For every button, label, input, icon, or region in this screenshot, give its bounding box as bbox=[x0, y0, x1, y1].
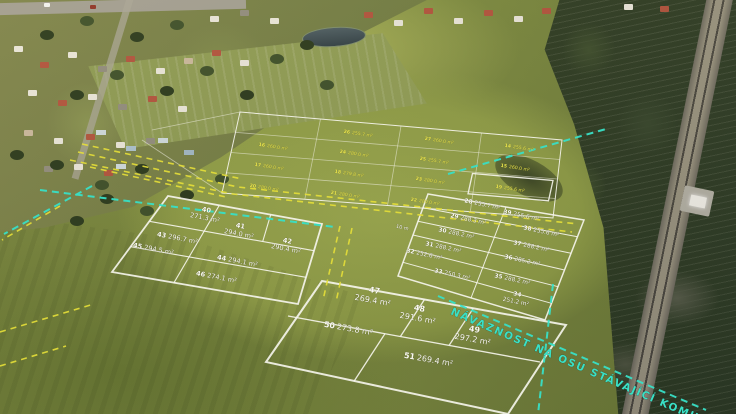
plot-label: 40271.3 m² bbox=[189, 203, 222, 225]
plot-label: 50273.8 m² bbox=[323, 320, 373, 337]
plot-label: 21280.0 m² bbox=[330, 190, 360, 201]
plot-label: 29288.3 m² bbox=[450, 212, 487, 226]
planned-road-yellow-line bbox=[82, 144, 242, 179]
plot-label: 36285.2 m² bbox=[504, 253, 541, 267]
aerial-photo: 14255.6 m² 15260.0 m² 16260.0 m² 17260.0… bbox=[0, 0, 736, 414]
plot-label: 33250.3 m² bbox=[434, 267, 471, 281]
plot-label: 17260.0 m² bbox=[254, 162, 284, 173]
plot-label: 39255.6 m² bbox=[503, 208, 540, 222]
plot-label: 16260.0 m² bbox=[258, 142, 288, 153]
plot-label: 26255.7 m² bbox=[343, 129, 373, 140]
planned-road-yellow-line bbox=[336, 228, 352, 302]
road-axis-annotation: NÁVAZNOST NA OSU STÁVAJÍCÍ KOMUNIKACE bbox=[449, 305, 736, 414]
plot-label: 41294.0 m² bbox=[223, 219, 256, 241]
plot-label: 28255.7 m² bbox=[464, 197, 501, 211]
plot-label: 48291.6 m² bbox=[399, 301, 438, 326]
plot-label: 23280.0 m² bbox=[415, 176, 445, 187]
road-axis-teal-line bbox=[438, 296, 706, 410]
plot-label: 24280.0 m² bbox=[339, 149, 369, 160]
plot-label: 20280.0 m² bbox=[249, 183, 279, 194]
planned-road-yellow-line bbox=[323, 226, 340, 300]
plot-label: 44294.1 m² bbox=[216, 253, 258, 269]
plot-label: 30288.2 m² bbox=[438, 226, 475, 240]
plot-label: 42290.4 m² bbox=[270, 234, 303, 256]
plot-label: 43296.7 m² bbox=[156, 230, 198, 246]
plot-label: 19255.6 m² bbox=[495, 184, 525, 195]
plot-label: 34251.2 m² bbox=[502, 289, 531, 308]
plot-label: 15260.0 m² bbox=[500, 163, 530, 174]
plot-label: 18279.8 m² bbox=[334, 169, 364, 180]
plot-label: 47269.4 m² bbox=[354, 283, 393, 308]
plot-label: 35288.2 m² bbox=[494, 272, 531, 286]
plot-label: 27260.0 m² bbox=[424, 136, 454, 147]
plot-label: 25255.7 m² bbox=[419, 156, 449, 167]
plot-label: 37288.2 m² bbox=[513, 239, 550, 253]
plot-label: 38255.6 m² bbox=[523, 224, 560, 238]
plot-label: 45294.5 m² bbox=[132, 241, 174, 257]
survey-line bbox=[152, 112, 240, 130]
planned-road-yellow-line bbox=[0, 304, 94, 332]
boundary-teal-line bbox=[40, 190, 335, 227]
planned-road-yellow-line bbox=[2, 206, 60, 240]
plot-label: 46274.1 m² bbox=[195, 269, 237, 285]
planned-road-yellow-line bbox=[0, 346, 66, 366]
plot-overlay: 14255.6 m² 15260.0 m² 16260.0 m² 17260.0… bbox=[0, 0, 736, 414]
road-width-label: 10 m bbox=[395, 224, 409, 233]
plot-label: 51269.4 m² bbox=[403, 351, 453, 368]
plot-label: 14255.6 m² bbox=[504, 143, 534, 154]
boundary-teal-line bbox=[4, 186, 92, 234]
